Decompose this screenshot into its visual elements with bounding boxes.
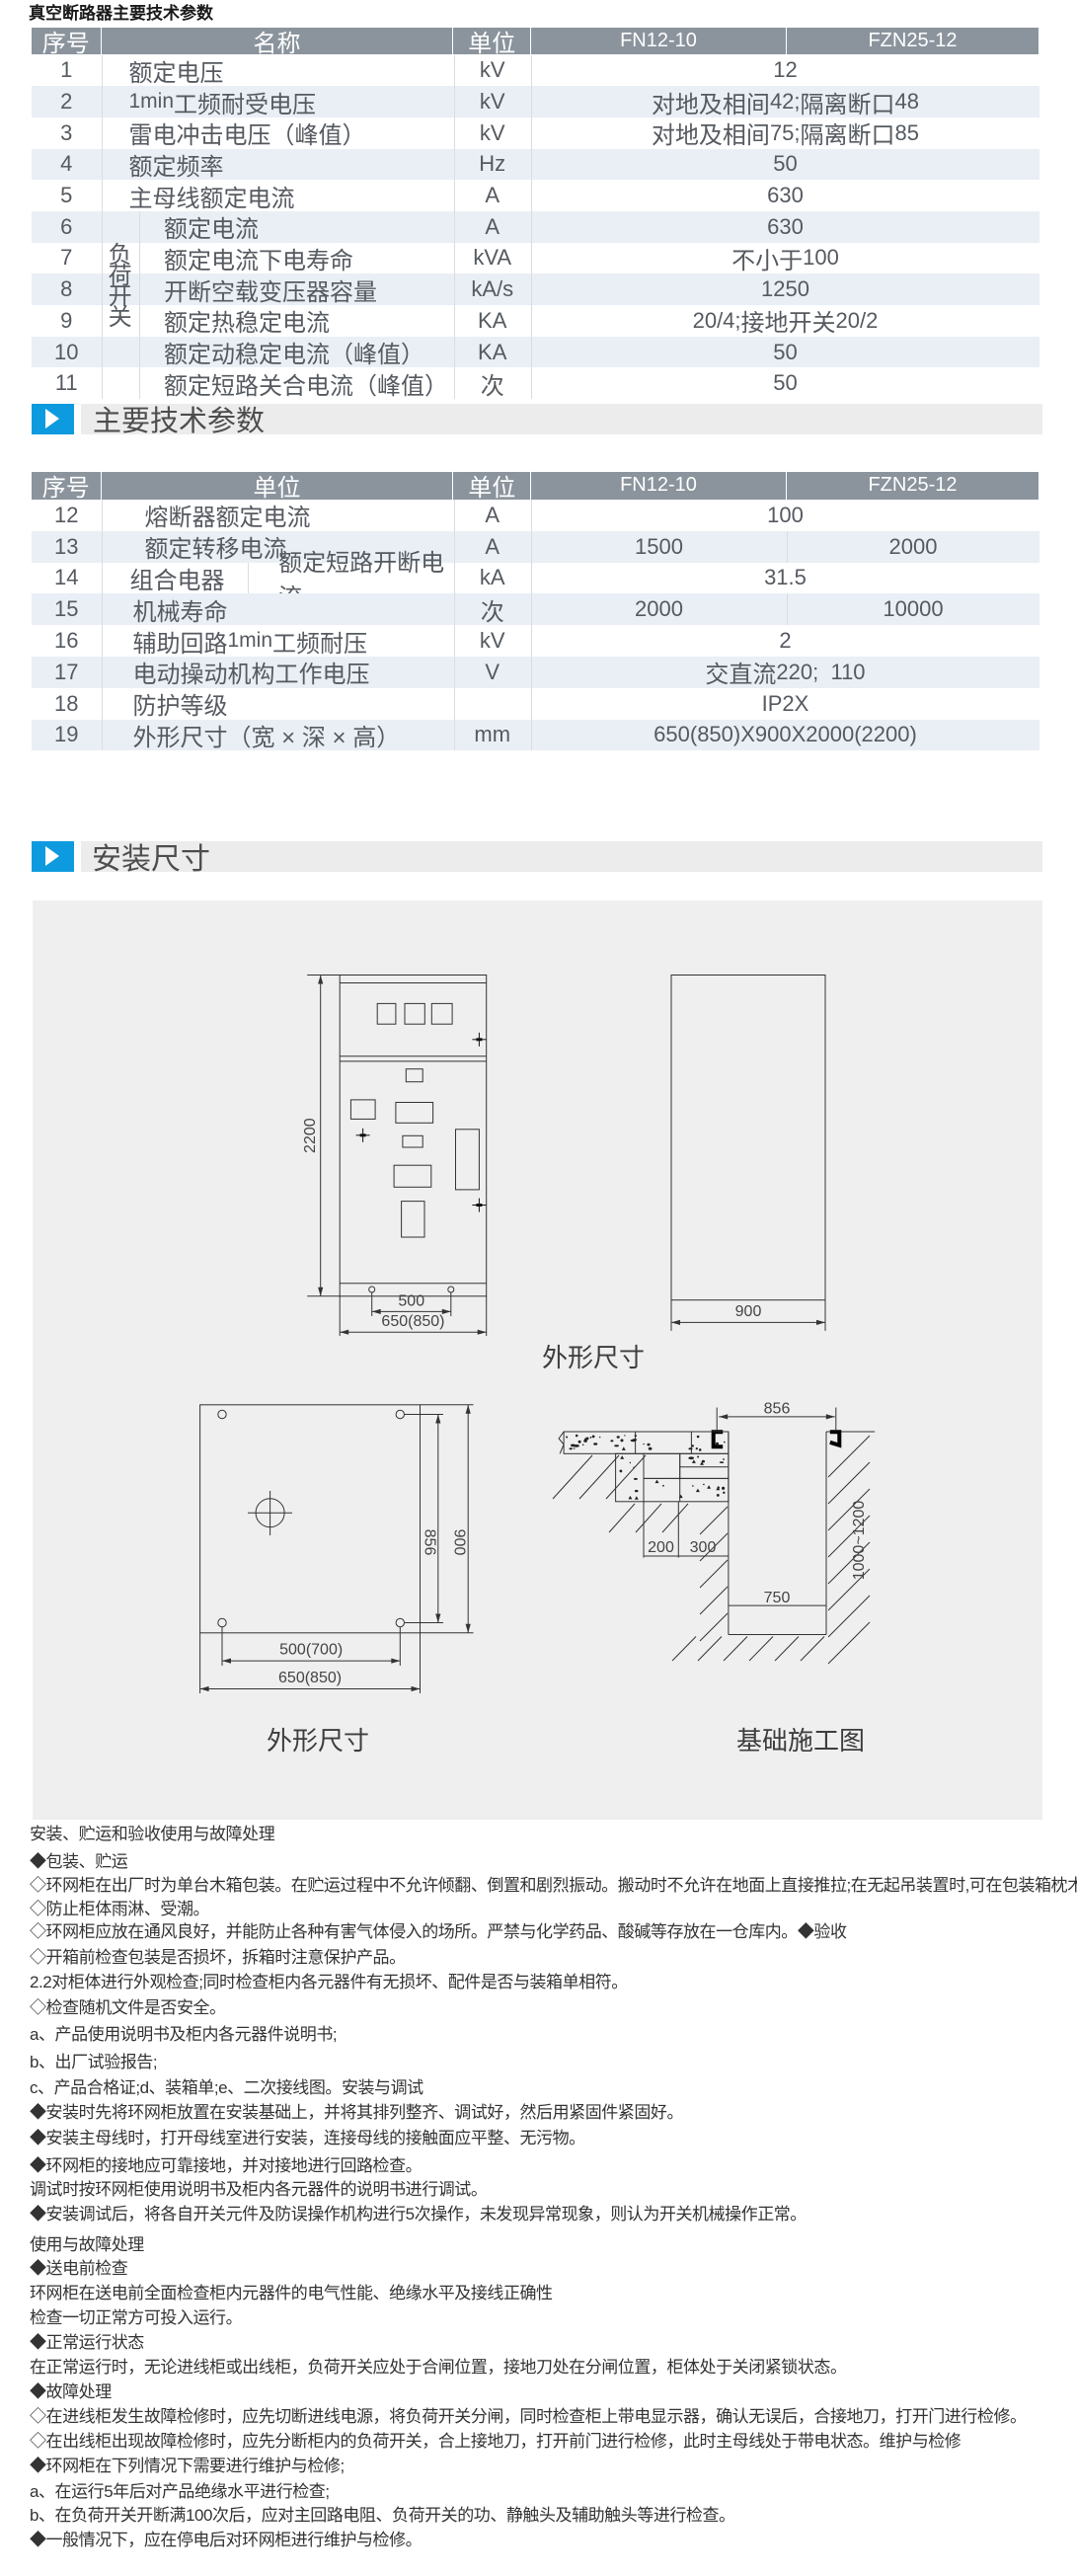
svg-text:900: 900 <box>451 1528 468 1555</box>
svg-text:500: 500 <box>398 1292 424 1309</box>
svg-text:500(700): 500(700) <box>279 1641 343 1658</box>
svg-text:300: 300 <box>690 1539 717 1556</box>
svg-text:856: 856 <box>422 1528 438 1555</box>
svg-text:856: 856 <box>764 1400 791 1417</box>
svg-text:650(850): 650(850) <box>381 1313 444 1330</box>
svg-text:2200: 2200 <box>302 1118 319 1153</box>
svg-text:1000~1200: 1000~1200 <box>851 1500 868 1580</box>
svg-text:750: 750 <box>764 1590 791 1606</box>
svg-text:200: 200 <box>648 1539 674 1556</box>
svg-text:650(850): 650(850) <box>278 1670 342 1686</box>
svg-text:900: 900 <box>735 1303 762 1320</box>
